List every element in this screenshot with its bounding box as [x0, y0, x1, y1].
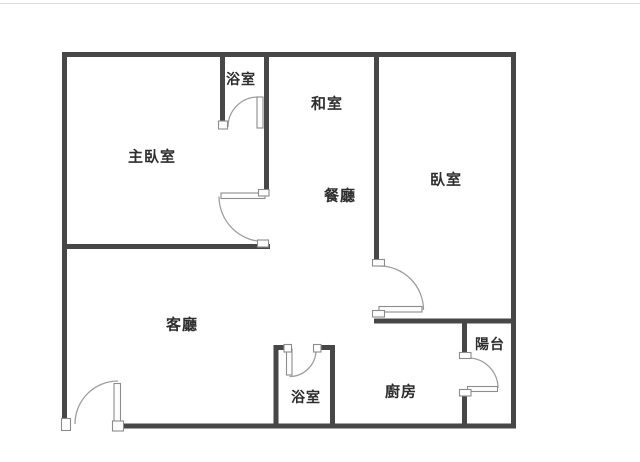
room-label-bedroom: 臥室	[430, 173, 462, 188]
door-panels-group	[62, 97, 498, 431]
door-jamb-bathroom-top	[219, 121, 228, 129]
room-label-dining-room: 餐廳	[324, 189, 356, 204]
door-panel-bathroom-bottom	[287, 349, 293, 375]
door-jamb-entrance-right	[113, 421, 124, 431]
door-arc-balcony	[468, 358, 498, 388]
door-jamb-bedroom-top	[373, 260, 385, 267]
door-panel-balcony	[468, 387, 498, 392]
door-panel-entrance	[114, 384, 121, 425]
room-label-master-bedroom: 主臥室	[128, 150, 176, 165]
door-arc-master-bedroom	[219, 197, 264, 242]
door-jamb-master-bedroom-top	[259, 190, 270, 197]
door-arc-bathroom-top	[228, 97, 258, 127]
door-jamb-bathroom-bottom-left	[284, 345, 292, 353]
floorplan-canvas: 主臥室 浴室 和室 餐廳 臥室 客廳 浴室 廚房 陽台	[0, 0, 640, 462]
door-jamb-bathroom-bottom-right	[314, 345, 322, 353]
room-label-kitchen: 廚房	[385, 385, 417, 400]
door-jamb-master-bedroom-bottom	[258, 240, 269, 247]
room-label-bathroom-top: 浴室	[226, 72, 256, 86]
door-jamb-balcony-top	[460, 353, 472, 359]
room-label-balcony: 陽台	[475, 337, 505, 351]
door-jamb-entrance-left	[62, 419, 71, 431]
door-arc-bathroom-bottom	[290, 350, 317, 377]
door-panel-bedroom	[379, 307, 422, 313]
door-jamb-balcony-bottom	[460, 390, 472, 397]
room-label-bathroom-bottom: 浴室	[291, 390, 321, 404]
room-label-living-room: 客廳	[166, 318, 198, 333]
door-arc-bedroom	[380, 266, 424, 310]
room-label-tatami-room: 和室	[311, 97, 343, 112]
door-panel-bathroom-top	[257, 97, 263, 128]
door-arc-entrance	[75, 381, 118, 424]
door-jamb-bedroom-bottom	[373, 311, 385, 318]
